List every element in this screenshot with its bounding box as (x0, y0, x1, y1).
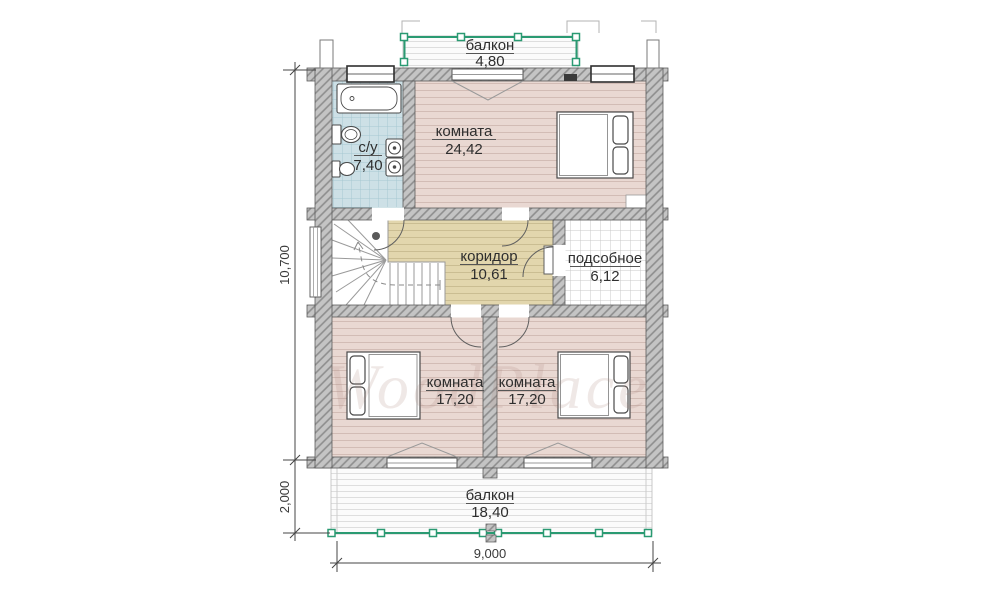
room-name: комната (427, 374, 484, 391)
room-name: балкон (466, 487, 515, 504)
bathtub (337, 84, 401, 113)
dim-total-width: 9,000 (474, 546, 507, 561)
room-name: комната (499, 374, 556, 391)
watermark: WoodPlace (325, 351, 650, 422)
utility-door-leaf (544, 246, 553, 274)
dim-total-depth: 10,700 (277, 245, 292, 285)
sink (386, 158, 403, 176)
room-area: 7,40 (353, 157, 382, 174)
wall-bath-divider (403, 81, 415, 208)
wall-middle-upper (307, 208, 668, 220)
room-area: 17,20 (508, 391, 546, 408)
floorplan-drawing: WoodPlace балкон 4,80 комната 24,42 с/у … (0, 0, 1000, 600)
wall-middle-lower (307, 305, 668, 317)
stair-window (310, 227, 321, 297)
sink (386, 139, 403, 157)
room-name: с/у (358, 139, 378, 156)
log-end-bottom (483, 468, 497, 478)
toilet (332, 125, 361, 144)
room-name: коридор (460, 248, 517, 265)
floorplan-page: { "rooms": { "balcony_top": {"label": "б… (0, 0, 1000, 600)
bed-top (557, 112, 633, 178)
room-area: 24,42 (445, 141, 483, 158)
room-area: 6,12 (590, 268, 619, 285)
label-balcony-bottom: балкон 18,40 (466, 487, 515, 521)
dim-balcony-depth: 2,000 (277, 481, 292, 514)
stair-newel-post (372, 232, 380, 240)
room-area: 18,40 (471, 504, 509, 521)
bidet (332, 161, 355, 177)
wall-bottom (307, 457, 668, 468)
room-area: 10,61 (470, 266, 508, 283)
roof-outline-marks (402, 21, 656, 33)
room-name: комната (436, 123, 493, 140)
room-area: 17,20 (436, 391, 474, 408)
room-name: подсобное (568, 250, 642, 267)
room-name: балкон (466, 37, 515, 54)
balcony-door-threshold (564, 74, 577, 81)
room-area: 4,80 (475, 53, 504, 70)
